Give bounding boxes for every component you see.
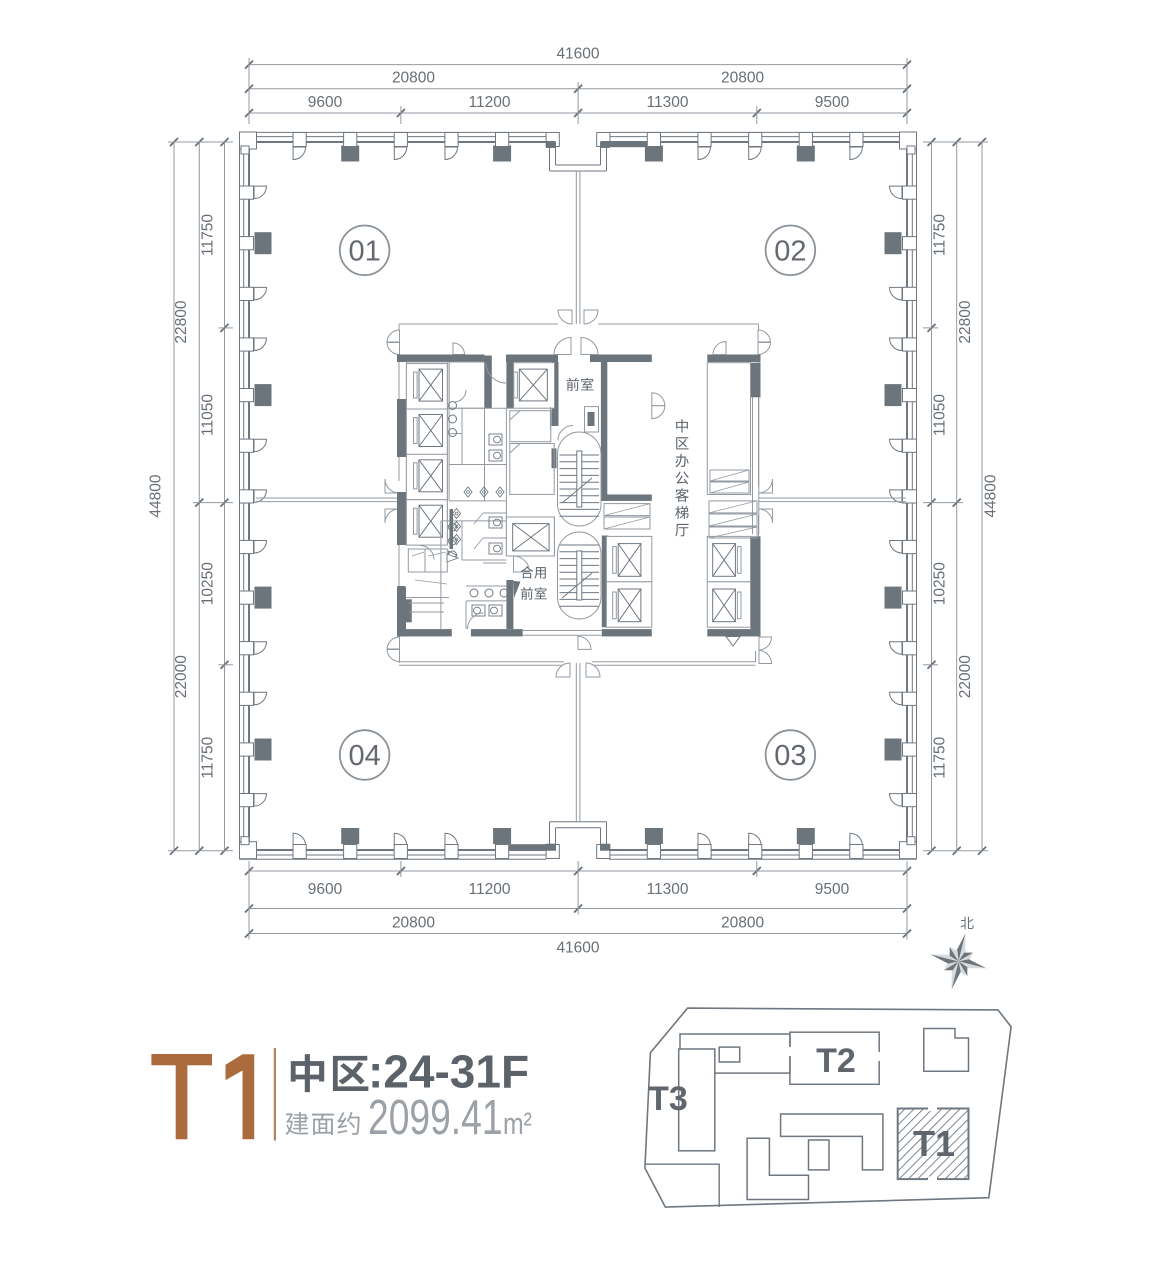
svg-text:9600: 9600 — [308, 881, 343, 898]
svg-text:9500: 9500 — [815, 881, 850, 898]
svg-text:22800: 22800 — [173, 300, 190, 343]
svg-text::24-31F: :24-31F — [368, 1046, 529, 1098]
svg-text:11750: 11750 — [932, 736, 949, 778]
svg-text:44800: 44800 — [983, 474, 1000, 517]
svg-text:11200: 11200 — [469, 94, 511, 111]
svg-text:22000: 22000 — [173, 655, 190, 698]
svg-text:T3: T3 — [648, 1080, 688, 1118]
svg-text:20800: 20800 — [392, 70, 435, 87]
svg-text:m²: m² — [503, 1106, 532, 1140]
svg-text:9500: 9500 — [815, 94, 850, 111]
svg-text:20800: 20800 — [392, 915, 435, 932]
svg-text:41600: 41600 — [556, 940, 599, 957]
svg-text:11750: 11750 — [932, 214, 949, 256]
svg-text:11200: 11200 — [469, 881, 511, 898]
svg-text:20800: 20800 — [721, 70, 764, 87]
svg-text:22800: 22800 — [957, 300, 974, 343]
svg-text:11750: 11750 — [200, 736, 217, 778]
svg-text:41600: 41600 — [556, 46, 599, 63]
svg-text:T1: T1 — [913, 1123, 955, 1164]
svg-text:9600: 9600 — [308, 94, 343, 111]
svg-text:44800: 44800 — [148, 474, 165, 517]
svg-text:11050: 11050 — [200, 394, 217, 436]
svg-text:10250: 10250 — [932, 562, 949, 605]
svg-text:04: 04 — [348, 740, 380, 772]
svg-text:11300: 11300 — [647, 94, 689, 111]
svg-text:10250: 10250 — [200, 562, 217, 605]
svg-text:22000: 22000 — [957, 655, 974, 698]
svg-text:11750: 11750 — [200, 214, 217, 256]
svg-text:11050: 11050 — [932, 394, 949, 436]
svg-text:01: 01 — [348, 235, 380, 267]
svg-text:20800: 20800 — [721, 915, 764, 932]
svg-text:2099.41: 2099.41 — [368, 1091, 503, 1145]
svg-text:T2: T2 — [816, 1042, 856, 1080]
svg-text:02: 02 — [774, 235, 806, 267]
svg-text:03: 03 — [774, 740, 806, 772]
svg-text:11300: 11300 — [647, 881, 689, 898]
